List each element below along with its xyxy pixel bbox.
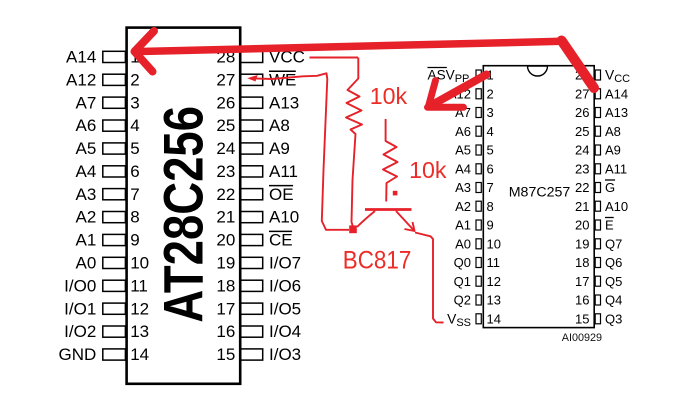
svg-text:13: 13 — [130, 322, 149, 341]
svg-text:M87C257: M87C257 — [509, 184, 571, 200]
svg-text:G: G — [605, 180, 615, 195]
svg-text:19: 19 — [216, 254, 235, 273]
svg-text:Q2: Q2 — [454, 293, 471, 308]
svg-text:26: 26 — [216, 93, 235, 112]
svg-text:12: 12 — [130, 299, 149, 318]
svg-text:BC817: BC817 — [343, 247, 412, 275]
svg-text:A13: A13 — [605, 105, 628, 120]
svg-text:A11: A11 — [269, 162, 298, 181]
svg-text:A2: A2 — [76, 208, 97, 227]
svg-text:A8: A8 — [269, 116, 290, 135]
svg-text:A10: A10 — [269, 208, 299, 227]
svg-text:A12: A12 — [66, 70, 96, 89]
svg-text:4: 4 — [487, 124, 494, 139]
svg-text:I/O2: I/O2 — [64, 322, 96, 341]
svg-text:26: 26 — [575, 105, 589, 120]
svg-text:17: 17 — [216, 299, 235, 318]
svg-text:A9: A9 — [269, 139, 290, 158]
svg-text:24: 24 — [575, 143, 589, 158]
svg-text:21: 21 — [216, 208, 235, 227]
svg-text:3: 3 — [487, 105, 494, 120]
svg-text:3: 3 — [130, 93, 139, 112]
svg-text:16: 16 — [575, 293, 589, 308]
svg-text:23: 23 — [216, 162, 235, 181]
svg-text:A13: A13 — [269, 93, 299, 112]
svg-text:11: 11 — [487, 255, 501, 270]
svg-text:14: 14 — [130, 345, 149, 364]
svg-text:A14: A14 — [66, 48, 96, 67]
svg-text:10: 10 — [487, 236, 501, 251]
svg-text:18: 18 — [575, 255, 589, 270]
svg-text:I/O6: I/O6 — [269, 276, 301, 295]
svg-text:A11: A11 — [605, 161, 627, 176]
svg-text:A7: A7 — [76, 93, 97, 112]
svg-text:10k: 10k — [409, 157, 447, 183]
svg-text:2: 2 — [130, 70, 139, 89]
svg-text:15: 15 — [575, 311, 589, 326]
svg-text:A3: A3 — [76, 185, 97, 204]
svg-text:A4: A4 — [455, 161, 471, 176]
svg-text:2: 2 — [487, 86, 494, 101]
svg-text:Q0: Q0 — [454, 255, 471, 270]
svg-text:6: 6 — [487, 161, 494, 176]
svg-text:4: 4 — [130, 116, 139, 135]
svg-text:A6: A6 — [455, 124, 471, 139]
svg-text:I/O3: I/O3 — [269, 345, 301, 364]
svg-text:A6: A6 — [76, 116, 97, 135]
svg-text:AT28C256: AT28C256 — [152, 106, 214, 323]
svg-text:A1: A1 — [455, 218, 471, 233]
svg-text:20: 20 — [216, 231, 235, 250]
svg-text:I/O4: I/O4 — [269, 322, 301, 341]
svg-text:11: 11 — [130, 276, 148, 295]
svg-text:10k: 10k — [370, 83, 408, 109]
svg-text:Q1: Q1 — [454, 274, 471, 289]
svg-text:5: 5 — [130, 139, 139, 158]
svg-text:18: 18 — [216, 276, 235, 295]
svg-text:Q4: Q4 — [605, 293, 622, 308]
svg-text:I/O1: I/O1 — [64, 299, 96, 318]
svg-text:14: 14 — [487, 311, 501, 326]
svg-text:8: 8 — [130, 208, 139, 227]
svg-text:A8: A8 — [605, 124, 621, 139]
svg-text:I/O5: I/O5 — [269, 299, 301, 318]
svg-text:24: 24 — [216, 139, 235, 158]
svg-text:WE: WE — [269, 70, 296, 89]
svg-text:19: 19 — [575, 236, 589, 251]
svg-text:Q5: Q5 — [605, 274, 622, 289]
svg-text:I/O0: I/O0 — [64, 276, 96, 295]
svg-text:Q3: Q3 — [605, 311, 622, 326]
svg-text:12: 12 — [487, 274, 501, 289]
svg-text:9: 9 — [487, 218, 494, 233]
svg-text:7: 7 — [130, 185, 139, 204]
svg-text:22: 22 — [216, 185, 235, 204]
svg-text:A10: A10 — [605, 199, 628, 214]
svg-text:A4: A4 — [76, 162, 97, 181]
svg-text:5: 5 — [487, 143, 494, 158]
svg-text:OE: OE — [269, 185, 294, 204]
svg-text:GND: GND — [59, 345, 97, 364]
svg-text:A1: A1 — [76, 231, 97, 250]
svg-text:A3: A3 — [455, 180, 471, 195]
svg-text:25: 25 — [216, 116, 235, 135]
svg-text:A0: A0 — [76, 254, 97, 273]
svg-text:A0: A0 — [455, 236, 471, 251]
svg-text:A2: A2 — [455, 199, 471, 214]
svg-text:20: 20 — [575, 218, 589, 233]
svg-text:27: 27 — [216, 70, 235, 89]
svg-text:6: 6 — [130, 162, 139, 181]
svg-text:21: 21 — [575, 199, 589, 214]
svg-text:8: 8 — [487, 199, 494, 214]
svg-text:27: 27 — [575, 86, 589, 101]
svg-text:23: 23 — [575, 161, 589, 176]
svg-text:E: E — [605, 218, 614, 233]
svg-text:A5: A5 — [455, 143, 471, 158]
svg-text:15: 15 — [216, 345, 235, 364]
svg-text:Q6: Q6 — [605, 255, 622, 270]
svg-text:7: 7 — [487, 180, 494, 195]
svg-text:Q7: Q7 — [605, 236, 622, 251]
svg-text:AI00929: AI00929 — [562, 332, 602, 344]
svg-text:CE: CE — [269, 231, 293, 250]
svg-text:A14: A14 — [605, 86, 628, 101]
svg-text:I/O7: I/O7 — [269, 254, 301, 273]
svg-text:10: 10 — [130, 254, 149, 273]
svg-text:22: 22 — [575, 180, 589, 195]
svg-text:A9: A9 — [605, 143, 621, 158]
svg-text:A5: A5 — [76, 139, 97, 158]
svg-text:16: 16 — [216, 322, 235, 341]
svg-text:17: 17 — [575, 274, 589, 289]
svg-text:9: 9 — [130, 231, 139, 250]
svg-text:25: 25 — [575, 124, 589, 139]
svg-text:13: 13 — [487, 293, 501, 308]
